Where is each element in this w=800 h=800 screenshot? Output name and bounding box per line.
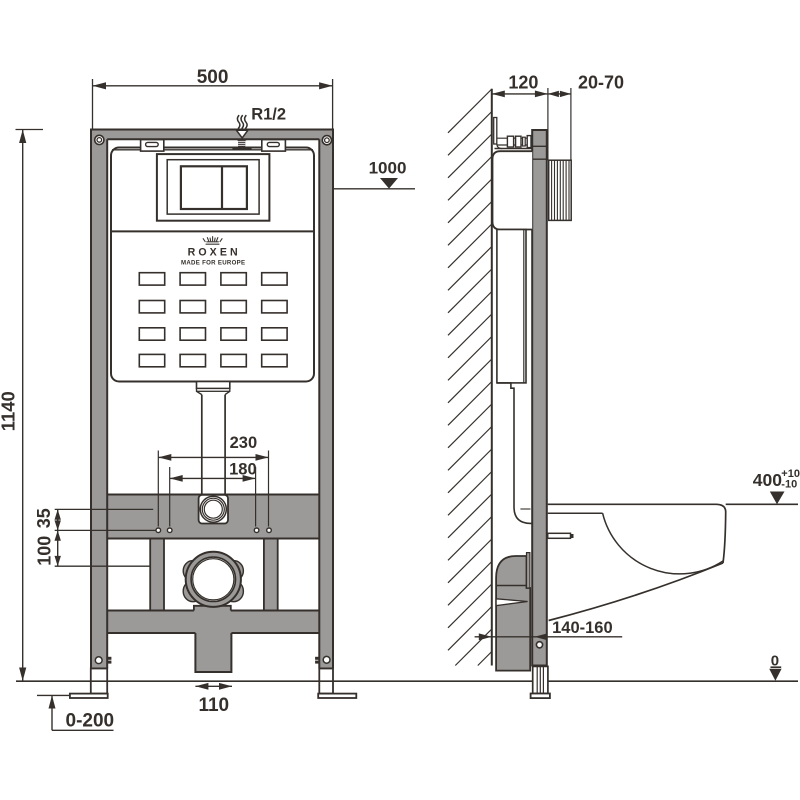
svg-text:140-160: 140-160 [552,619,613,637]
svg-text:230: 230 [230,434,258,452]
svg-text:180: 180 [229,460,257,478]
svg-text:R1/2: R1/2 [251,105,286,123]
svg-text:MADE FOR EUROPE: MADE FOR EUROPE [181,260,245,267]
svg-text:1000: 1000 [369,158,407,177]
svg-text:100: 100 [35,536,55,566]
svg-text:35: 35 [34,508,54,528]
svg-text:ROXEN: ROXEN [188,247,241,259]
svg-text:400: 400 [753,470,782,490]
svg-text:-10: -10 [781,479,797,491]
svg-text:0-200: 0-200 [66,710,115,731]
svg-text:20-70: 20-70 [578,73,624,93]
svg-text:120: 120 [508,73,538,93]
svg-text:1140: 1140 [0,391,18,431]
svg-text:500: 500 [197,67,229,88]
svg-text:110: 110 [198,695,229,716]
